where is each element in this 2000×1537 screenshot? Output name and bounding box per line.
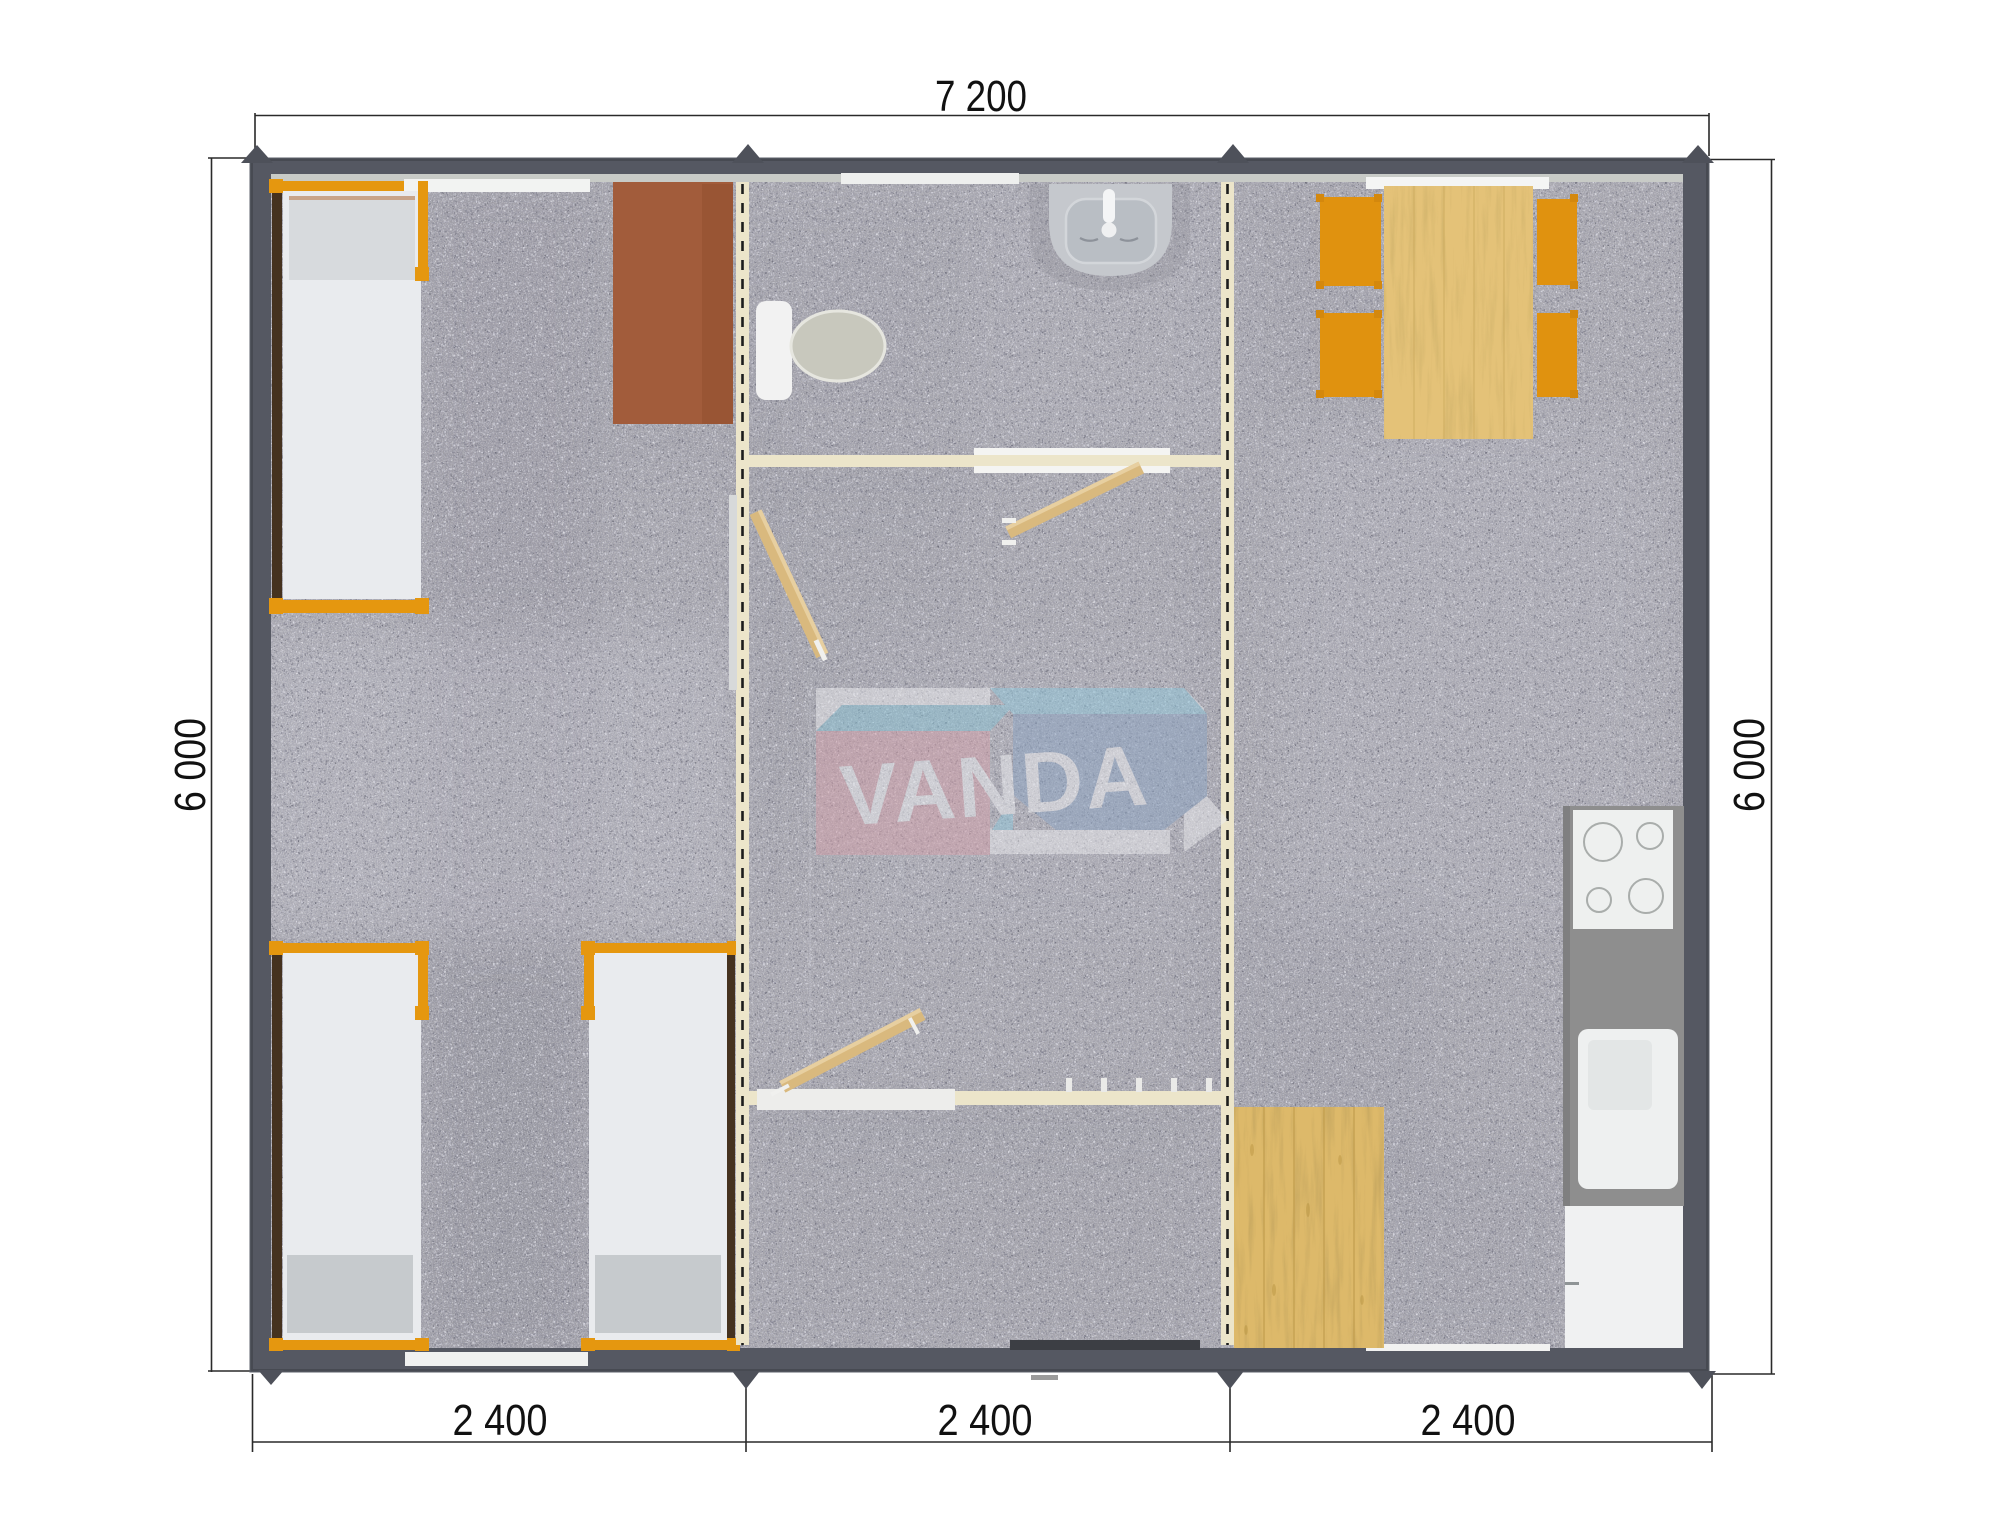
- svg-text:6 000: 6 000: [1725, 718, 1774, 812]
- svg-text:2 400: 2 400: [938, 1396, 1033, 1445]
- svg-text:7 200: 7 200: [935, 72, 1027, 121]
- svg-text:6 000: 6 000: [166, 718, 215, 812]
- svg-text:2 400: 2 400: [1421, 1396, 1516, 1445]
- svg-text:2 400: 2 400: [453, 1396, 548, 1445]
